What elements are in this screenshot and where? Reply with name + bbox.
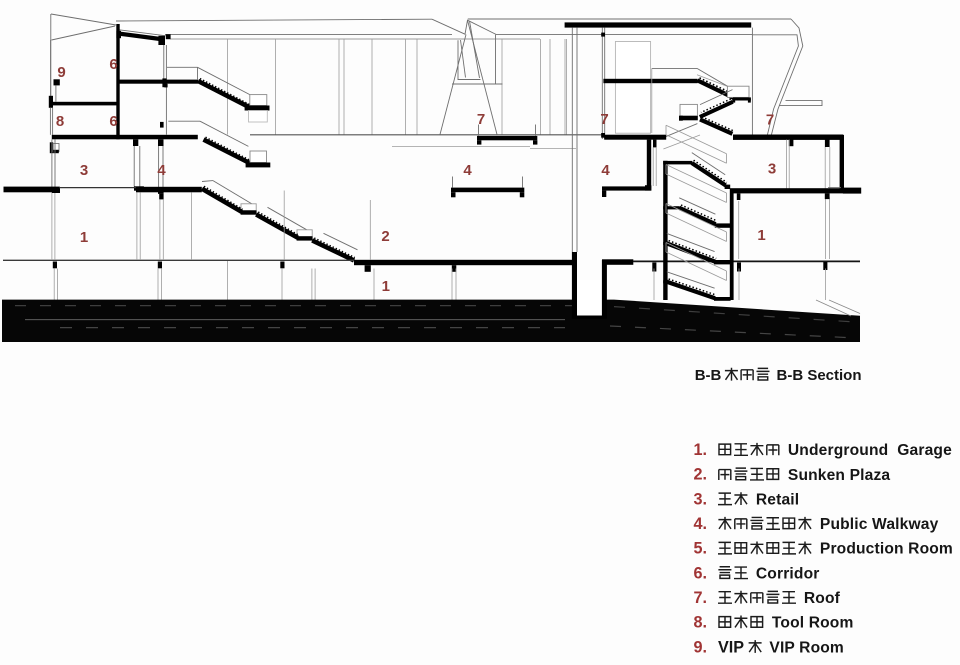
svg-text:8.: 8. [693,614,707,632]
svg-text:Underground Garage: Underground Garage [788,442,952,459]
svg-text:Roof: Roof [804,590,841,607]
svg-text:Retail: Retail [756,491,799,508]
svg-text:2.: 2. [693,466,707,484]
svg-text:3: 3 [80,162,88,179]
svg-text:4.: 4. [693,515,707,533]
svg-text:VIP: VIP [718,638,744,656]
svg-text:1.: 1. [693,441,707,459]
svg-text:6.: 6. [693,564,707,582]
svg-text:1: 1 [757,227,765,244]
svg-text:Public Walkway: Public Walkway [820,516,939,533]
svg-text:7: 7 [600,111,608,128]
svg-text:4: 4 [463,162,472,179]
svg-text:7: 7 [766,111,774,128]
svg-text:2: 2 [381,228,389,245]
svg-text:B-B Section: B-B Section [777,367,862,384]
svg-text:4: 4 [157,162,166,179]
svg-text:Production Room: Production Room [820,541,953,558]
svg-text:Corridor: Corridor [756,565,820,582]
svg-text:6: 6 [109,56,117,73]
svg-text:9: 9 [57,64,65,81]
svg-text:Tool Room: Tool Room [772,615,854,632]
svg-text:VIP Room: VIP Room [769,639,844,656]
svg-text:6: 6 [109,113,117,130]
svg-text:B-B: B-B [695,367,722,384]
svg-text:7: 7 [477,111,485,128]
svg-text:8: 8 [56,113,64,130]
svg-text:1: 1 [80,229,88,246]
svg-text:3.: 3. [693,490,707,508]
svg-text:5.: 5. [693,540,707,558]
svg-text:7.: 7. [693,589,707,607]
svg-text:Sunken Plaza: Sunken Plaza [788,467,891,484]
svg-text:9.: 9. [693,638,707,656]
svg-text:3: 3 [768,161,776,178]
svg-text:4: 4 [601,162,610,179]
svg-text:1: 1 [382,278,390,295]
